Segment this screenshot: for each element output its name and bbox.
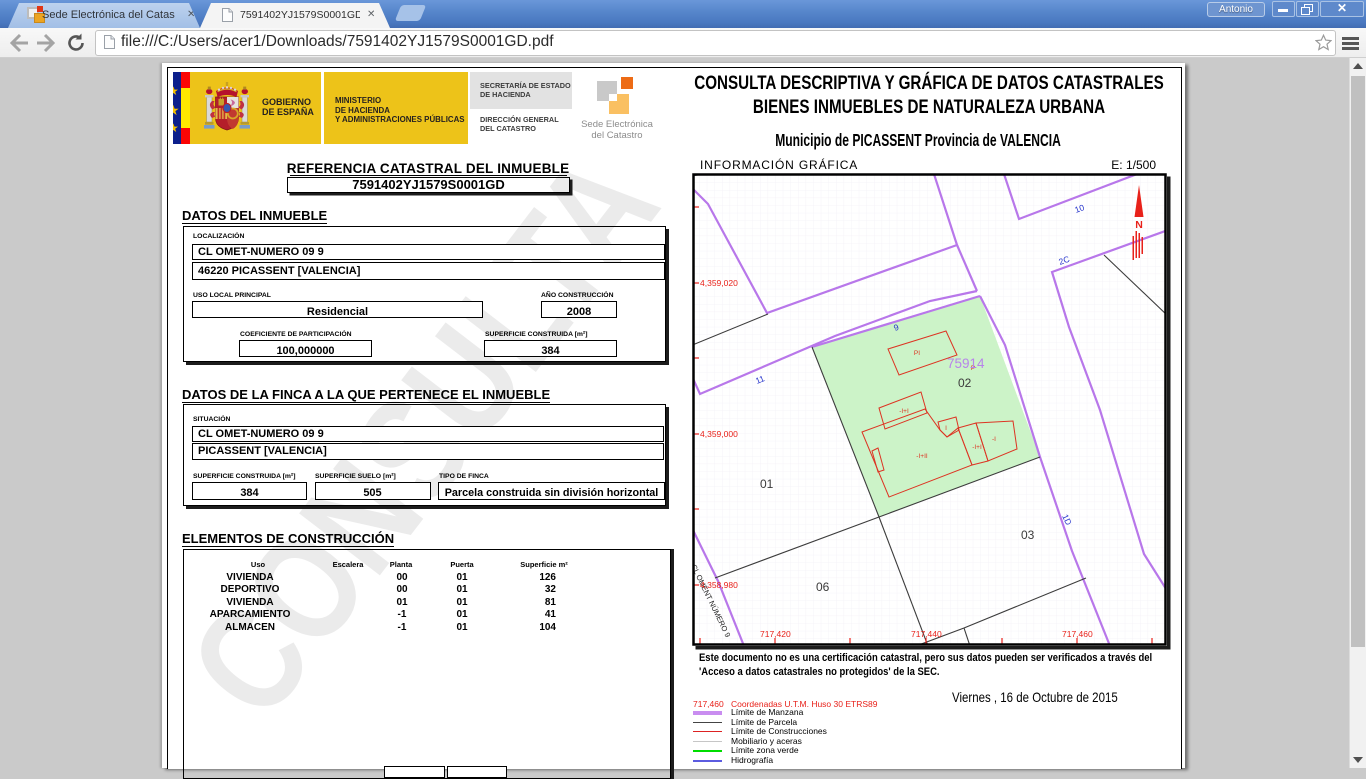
svg-text:717,460: 717,460 <box>1062 629 1093 639</box>
svg-text:75914: 75914 <box>947 356 985 371</box>
svg-text:06: 06 <box>816 580 830 594</box>
svg-text:I: I <box>945 425 947 432</box>
svg-text:02: 02 <box>958 376 972 390</box>
svg-text:-I+II: -I+II <box>916 453 928 460</box>
svg-text:-I+I: -I+I <box>899 408 909 415</box>
svg-text:-I+I: -I+I <box>972 444 982 451</box>
svg-text:-I: -I <box>992 436 996 443</box>
svg-text:01: 01 <box>760 477 774 491</box>
svg-text:03: 03 <box>1021 528 1035 542</box>
svg-text:4,358,980: 4,358,980 <box>700 580 738 590</box>
svg-text:717,420: 717,420 <box>760 629 791 639</box>
svg-text:N: N <box>1135 219 1143 231</box>
svg-text:PI: PI <box>914 350 920 357</box>
svg-text:4,359,020: 4,359,020 <box>700 278 738 288</box>
svg-text:4,359,000: 4,359,000 <box>700 429 738 439</box>
svg-text:717,440: 717,440 <box>911 629 942 639</box>
